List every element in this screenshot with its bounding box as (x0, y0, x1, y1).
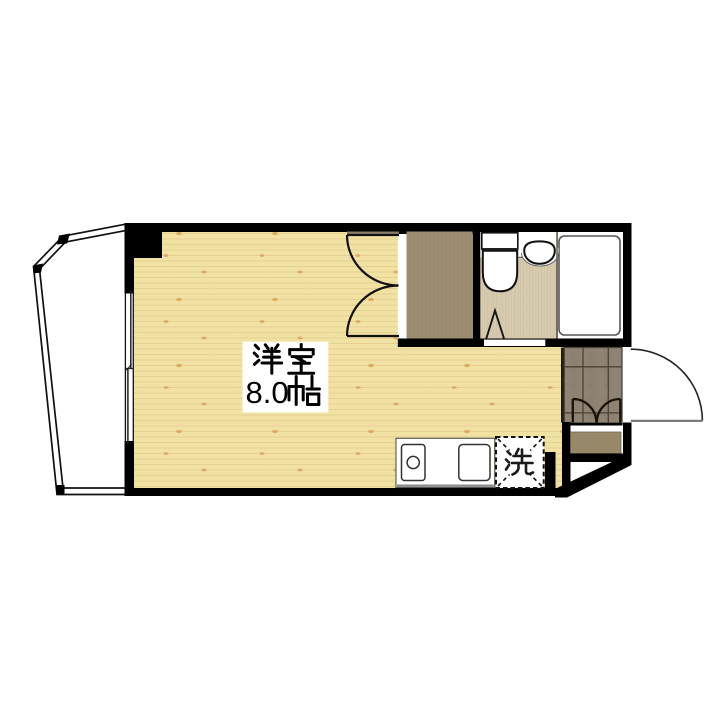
svg-text:8.0: 8.0 (246, 375, 289, 410)
